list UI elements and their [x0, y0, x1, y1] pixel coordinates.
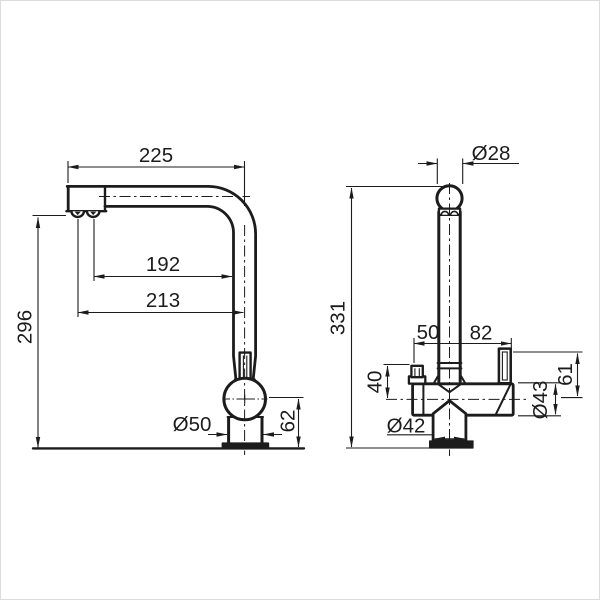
front-axis-to-left-handle-label: 50	[417, 321, 440, 344]
side-aerator-to-body-label: 192	[146, 253, 180, 276]
side-ball-joint-height-label: 62	[277, 410, 300, 433]
front-axis-to-right-handle-label: 82	[470, 322, 493, 345]
front-spout-tube-diameter-label: Ø28	[472, 142, 511, 165]
dim-192-213-extensions	[78, 219, 94, 317]
side-aerator-to-axis-label: 213	[146, 289, 180, 312]
side-view	[33, 186, 304, 455]
dim-28dia-extensions	[437, 159, 462, 185]
side-spout-reach-label: 225	[139, 144, 173, 167]
side-base-diameter-label: Ø50	[173, 413, 212, 436]
front-outlet-diameter-label: Ø42	[387, 415, 426, 438]
front-overall-height-label: 331	[327, 301, 350, 335]
left-lever	[411, 366, 422, 377]
faucet-dimension-drawing: 225 192 213 296 Ø50 62	[0, 0, 600, 600]
dim-225-extensions	[68, 161, 245, 206]
right-lever	[499, 349, 511, 384]
front-body-diameter-label: Ø43	[529, 381, 552, 420]
image-border	[1, 1, 600, 600]
outlet-flange	[429, 440, 474, 448]
side-spout-height-label: 296	[14, 310, 37, 344]
technical-drawing-canvas: 225 192 213 296 Ø50 62	[0, 0, 600, 600]
dim-50-82-extensions	[414, 338, 511, 381]
front-left-handle-height-label: 40	[364, 371, 387, 394]
